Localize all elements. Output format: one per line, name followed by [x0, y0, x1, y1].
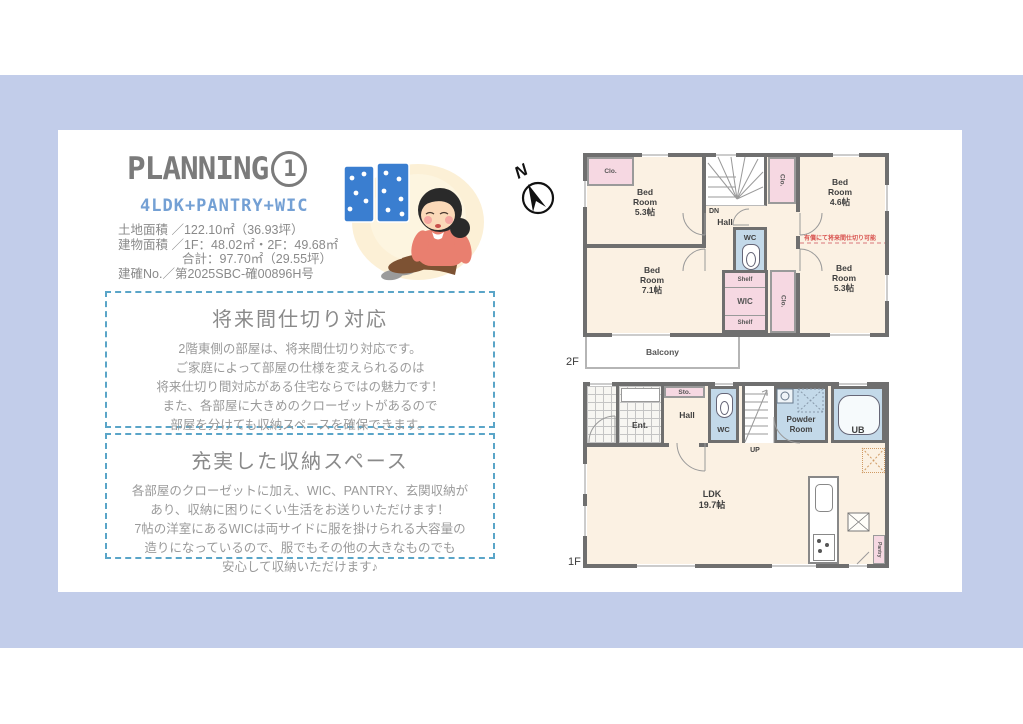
title-number: 1: [283, 157, 295, 182]
floor-plan-1f: Ent. Sto. Hall WC UP Powder Room UB: [583, 382, 889, 568]
domino-left: [344, 166, 374, 222]
spec-building-area: 建物面積 ／1F：48.02㎡・2F：49.68㎡: [118, 238, 338, 253]
powder-room: Powder Room: [774, 386, 828, 443]
entrance-label: Ent.: [619, 420, 661, 430]
domino-right: [377, 163, 409, 222]
title-number-circle: 1: [271, 151, 307, 187]
info-box-partition-title: 将来間仕切り対応: [107, 303, 493, 332]
woman-dominoes-illustration: [336, 148, 484, 286]
info-box-partition-body: 2階東側の部屋は、将来間仕切り対応です。 ご家庭によって部屋の仕様を変えられるの…: [107, 340, 493, 435]
staircase-2f: [706, 157, 767, 206]
spec-permit-number: 建確No.／第2025SBC-確00896H号: [118, 267, 338, 282]
text-line: 将来仕切り間対応がある住宅ならではの魅力です！: [107, 378, 493, 397]
stairs-up-label: UP: [745, 447, 765, 455]
unit-bath-label: UB: [834, 425, 882, 436]
closet-label: Clo.: [779, 174, 786, 186]
balcony: Balcony: [585, 337, 740, 369]
bedroom-2f-southwest: Bed Room 7.1帖: [633, 265, 671, 296]
floor-plan-2f: DN Clo. Clo. Shelf WIC Shelf Clo. WC Bed…: [583, 153, 889, 337]
text-line: 安心して収納いただけます♪: [107, 558, 493, 577]
partition-note: 有償にて将来間仕切り可能: [795, 233, 885, 242]
closet-2f-top-left: Clo.: [587, 157, 634, 186]
kitchen-counter: [808, 476, 839, 564]
flyer-sheet: PLANNING1 4LDK+PANTRY+WIC 土地面積 ／122.10㎡（…: [0, 0, 1023, 724]
shelf-wic-column: Shelf WIC Shelf: [722, 270, 768, 333]
entrance-cabinet: [621, 388, 660, 402]
walk-in-closet: WIC: [725, 288, 765, 315]
shelf-top: Shelf: [725, 273, 765, 288]
area-specs: 土地面積 ／122.10㎡（36.93坪） 建物面積 ／1F：48.02㎡・2F…: [118, 223, 338, 281]
closet-2f-bottom: Clo.: [770, 270, 796, 333]
spec-land-area: 土地面積 ／122.10㎡（36.93坪）: [118, 223, 338, 238]
bedroom-2f-southeast: Bed Room 5.3帖: [825, 263, 863, 294]
info-box-storage-title: 充実した収納スペース: [107, 445, 493, 474]
wc-label: WC: [711, 425, 736, 434]
stove: [813, 534, 835, 561]
text-line: ご家庭によって部屋の仕様を変えられるのは: [107, 359, 493, 378]
pantry-label: Pantry: [876, 542, 882, 558]
floor-tag-1f: 1F: [568, 556, 581, 568]
storage-label: Sto.: [678, 389, 690, 396]
text-line: 各部屋のクローゼットに加え、WIC、PANTRY、玄関収納が: [107, 482, 493, 501]
info-box-partition: 将来間仕切り対応 2階東側の部屋は、将来間仕切り対応です。 ご家庭によって部屋の…: [105, 291, 495, 428]
shelf-bottom: Shelf: [725, 315, 765, 330]
wc-label: WC: [736, 233, 764, 242]
text-line: また、各部屋に大きめのクローゼットがあるので: [107, 397, 493, 416]
wc-1f: WC: [708, 386, 739, 443]
toilet-icon: [742, 244, 760, 270]
floor-tag-2f: 2F: [566, 356, 579, 368]
page-title-text: PLANNING: [127, 151, 268, 187]
closet-label: Clo.: [604, 168, 616, 175]
stairs-down-label: DN: [704, 208, 724, 216]
spec-total-area: 合計：97.70㎡（29.55坪）: [118, 252, 338, 267]
ldk-label: LDK 19.7帖: [682, 489, 742, 511]
bedroom-2f-northeast: Bed Room 4.6帖: [821, 177, 859, 208]
toilet-icon: [716, 393, 733, 418]
compass-north-label: N: [511, 160, 531, 183]
storage-1f: Sto.: [664, 386, 705, 398]
unit-bath: UB: [831, 386, 885, 443]
text-line: 2階東側の部屋は、将来間仕切り対応です。: [107, 340, 493, 359]
hall-2f-label: Hall: [705, 217, 745, 227]
text-line: 7帖の洋室にあるWICは両サイドに服を掛けられる大容量の: [107, 520, 493, 539]
bedroom-2f-northwest: Bed Room 5.3帖: [626, 187, 664, 218]
staircase-1f: [742, 386, 777, 443]
kitchen-sink: [815, 484, 833, 512]
entrance: Ent.: [619, 386, 661, 443]
info-box-storage: 充実した収納スペース 各部屋のクローゼットに加え、WIC、PANTRY、玄関収納…: [105, 433, 495, 559]
plan-subtitle: 4LDK+PANTRY+WIC: [140, 196, 309, 216]
compass-icon: N: [507, 158, 563, 222]
powder-room-label: Powder Room: [784, 415, 818, 434]
page-title: PLANNING1: [127, 151, 307, 187]
info-box-storage-body: 各部屋のクローゼットに加え、WIC、PANTRY、玄関収納が あり、収納に困りに…: [107, 482, 493, 577]
text-line: あり、収納に困りにくい生活をお送りいただけます！: [107, 501, 493, 520]
text-line: 造りになっているので、服でもその他の大きなものでも: [107, 539, 493, 558]
closet-2f-top-mid: Clo.: [768, 157, 796, 204]
pantry: Pantry: [873, 535, 885, 564]
wc-2f: WC: [733, 227, 767, 273]
balcony-label: Balcony: [646, 347, 679, 357]
refrigerator-space: [862, 448, 885, 473]
hall-1f-label: Hall: [667, 410, 707, 420]
porch-tiles: [587, 386, 616, 443]
closet-label: Clo.: [780, 295, 787, 307]
